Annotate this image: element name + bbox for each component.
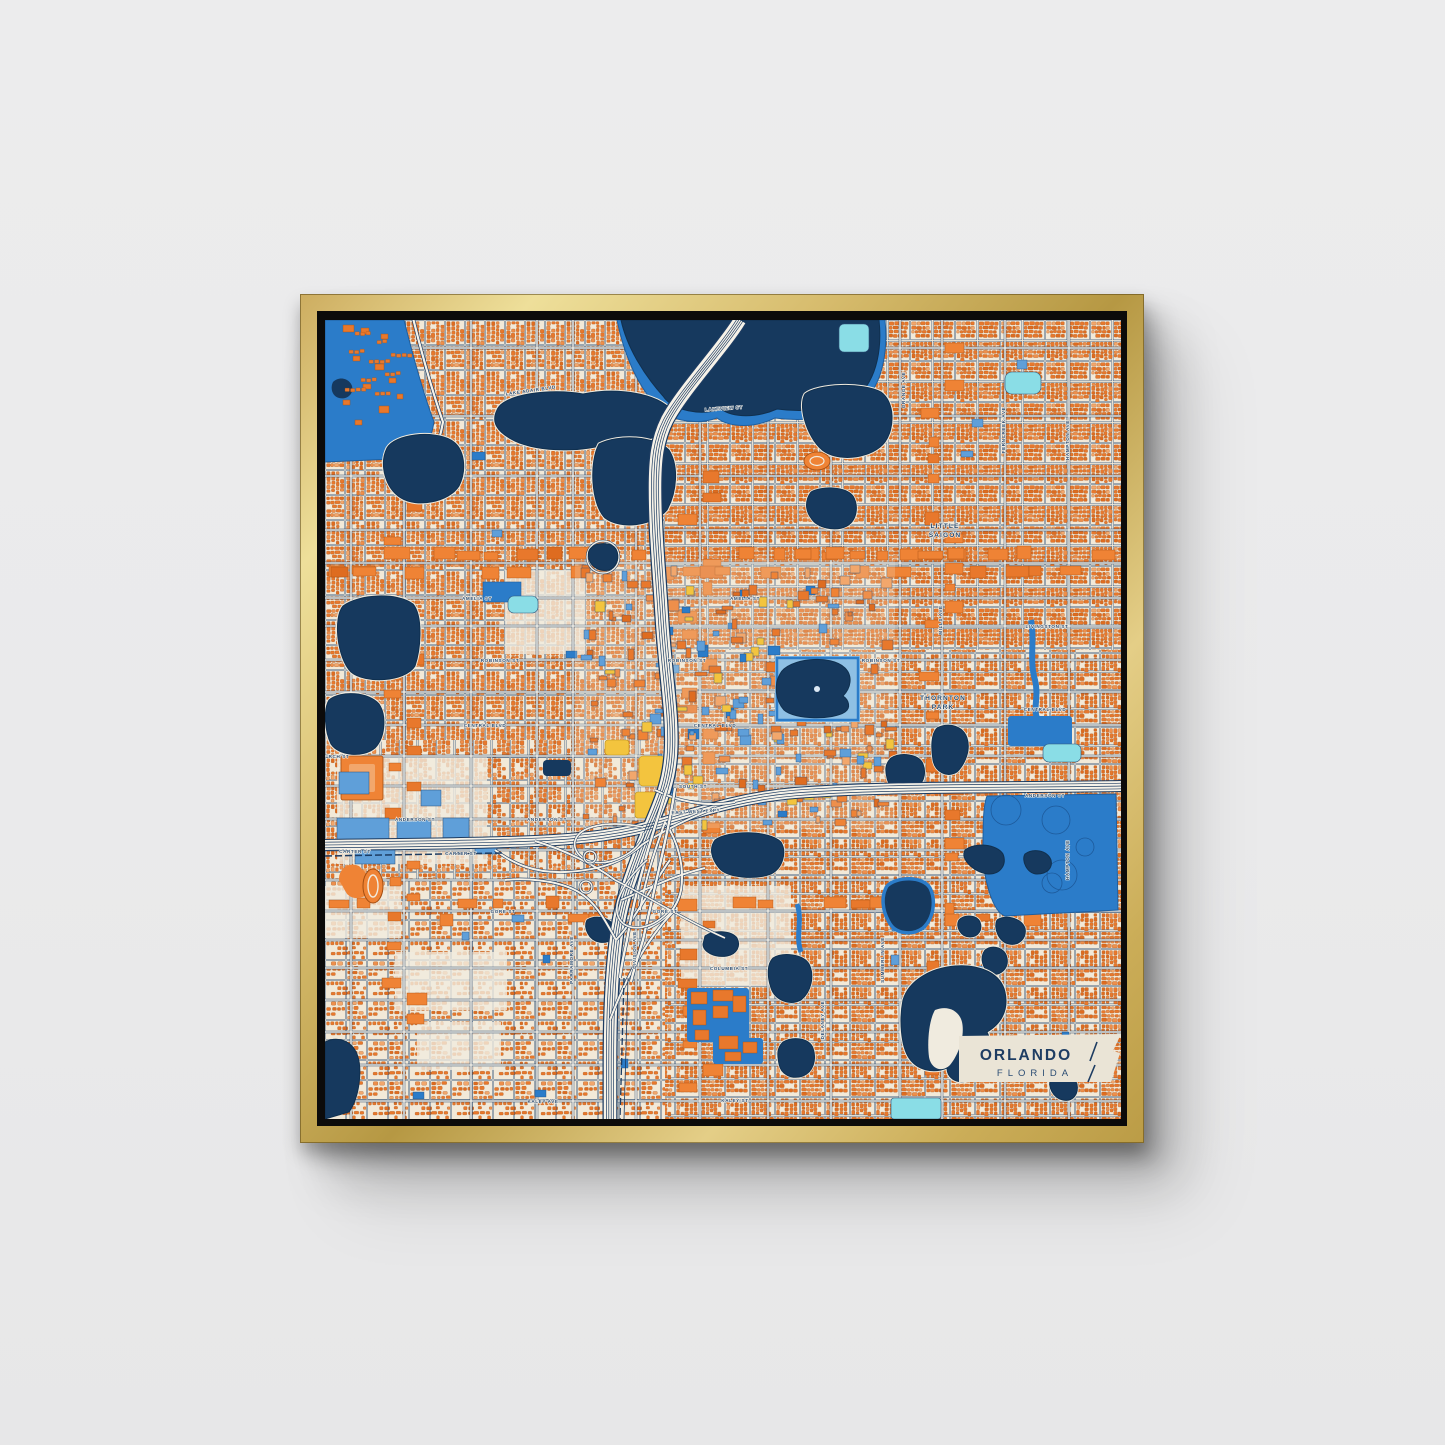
svg-text:SUMMERLIN AVE: SUMMERLIN AVE <box>880 937 885 983</box>
svg-text:COLUMBIA ST: COLUMBIA ST <box>710 966 748 971</box>
svg-text:ANDERSON ST: ANDERSON ST <box>395 817 435 822</box>
svg-text:THORNTON: THORNTON <box>920 695 966 702</box>
svg-text:ROBINSON ST: ROBINSON ST <box>481 658 520 663</box>
svg-text:SAIGON: SAIGON <box>929 532 962 539</box>
svg-text:ROBINSON ST: ROBINSON ST <box>668 658 707 663</box>
svg-text:LITTLE: LITTLE <box>931 523 960 530</box>
svg-text:AMELIA ST: AMELIA ST <box>730 596 760 601</box>
svg-text:DIVISION AVE: DIVISION AVE <box>632 931 637 969</box>
svg-text:AMELIA ST: AMELIA ST <box>462 596 492 601</box>
svg-text:LIVINGSTON ST: LIVINGSTON ST <box>1026 624 1069 629</box>
svg-text:PARRAMORE AVE: PARRAMORE AVE <box>569 936 574 984</box>
svg-text:CARTER ST: CARTER ST <box>339 849 371 854</box>
svg-text:FLORIDA: FLORIDA <box>997 1068 1073 1079</box>
svg-text:DELANEY AVE: DELANEY AVE <box>820 1001 825 1040</box>
svg-text:KALEY ST: KALEY ST <box>721 1098 748 1103</box>
svg-text:HAMPTON AVE: HAMPTON AVE <box>1065 840 1070 880</box>
svg-text:ORLANDO: ORLANDO <box>980 1047 1072 1064</box>
svg-text:FERNCREEK AVE: FERNCREEK AVE <box>1001 407 1006 454</box>
svg-text:PARK: PARK <box>932 704 955 711</box>
svg-text:RCH ST: RCH ST <box>329 754 350 759</box>
svg-text:ANDERSON ST: ANDERSON ST <box>1025 793 1065 798</box>
svg-text:KALEY AVE: KALEY AVE <box>527 1099 558 1104</box>
svg-text:ROBINSON ST: ROBINSON ST <box>862 658 901 663</box>
svg-text:CENTRAL BLVD: CENTRAL BLVD <box>1024 707 1067 712</box>
svg-text:SOUTH ST: SOUTH ST <box>679 784 707 789</box>
svg-text:ANDERSON ST: ANDERSON ST <box>527 817 567 822</box>
svg-text:ORANGE AVE: ORANGE AVE <box>901 372 906 408</box>
svg-text:HAMPTON AVE: HAMPTON AVE <box>1065 420 1070 460</box>
svg-text:CENTRAL BLVD: CENTRAL BLVD <box>464 723 507 728</box>
svg-text:MILLS AVE: MILLS AVE <box>938 605 943 634</box>
svg-text:GORE ST: GORE ST <box>653 909 678 914</box>
svg-text:GORE ST: GORE ST <box>491 909 516 914</box>
svg-text:CENTRAL BLVD: CENTRAL BLVD <box>694 723 737 728</box>
svg-text:CARTER ST: CARTER ST <box>445 851 477 856</box>
